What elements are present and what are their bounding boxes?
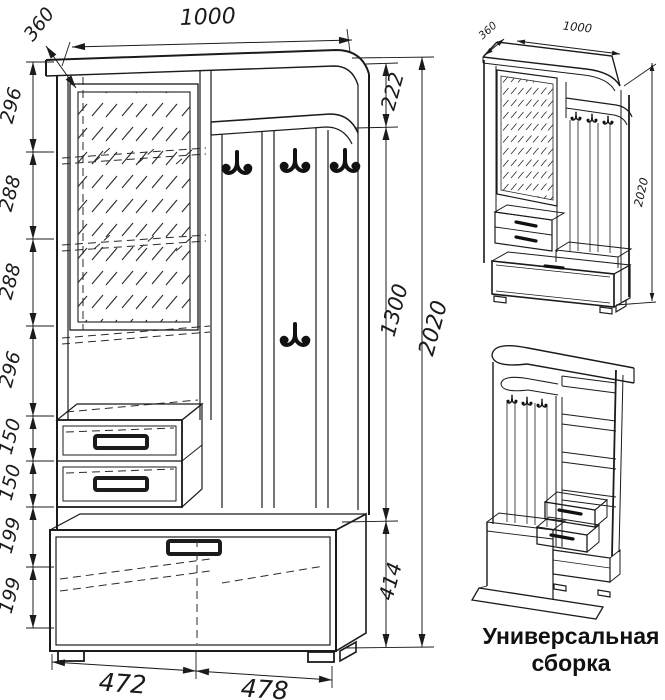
foot [308, 652, 334, 662]
dim-150-upper: 150 [0, 416, 26, 457]
caption-line-1: Универсальная [483, 623, 660, 649]
iso-feet [494, 296, 626, 314]
iso-door-handle [545, 266, 563, 268]
coat-hook-icon [603, 116, 613, 124]
coat-hook-icon [571, 112, 581, 120]
mirror [70, 77, 198, 330]
furniture-technical-drawing: 296 288 288 296 150 150 199 199 1000 360… [0, 0, 665, 700]
drawer-unit [57, 404, 202, 507]
iso2-base [553, 550, 620, 597]
iso-hat-shelf [566, 98, 632, 125]
iso2-right-inner [619, 375, 623, 552]
coat-hook-icon [537, 399, 547, 407]
foot [340, 642, 356, 661]
coat-hook-icon [587, 114, 597, 122]
caption-line-2: сборка [531, 650, 610, 676]
iso-mirror [497, 70, 557, 206]
drawing-svg: 296 288 288 296 150 150 199 199 1000 360… [0, 0, 665, 700]
iso-dim-360: 360 [477, 19, 500, 42]
dim-288-lower: 288 [0, 261, 26, 302]
coat-hook-icon [282, 150, 309, 171]
iso-slats [570, 120, 610, 253]
mirror-hatch [78, 92, 190, 322]
dim-niche-222: 222 [376, 70, 409, 113]
iso-mirror-hatch [501, 76, 553, 200]
iso2-right-edge [612, 370, 616, 556]
iso-drawer-unit [495, 205, 564, 251]
iso-view-standard: 1000 360 2020 [477, 19, 656, 314]
dim-150-lower: 150 [0, 462, 26, 503]
dim-depth-360: 360 [19, 3, 59, 45]
coat-hooks [224, 150, 359, 345]
dim-cabinet-414: 414 [374, 560, 407, 603]
dim-199-lower: 199 [0, 575, 26, 616]
base-cabinet [50, 514, 366, 662]
center-divider-panel [200, 70, 211, 420]
coat-hook-icon [224, 152, 251, 173]
hook-panel-slats [222, 128, 328, 508]
iso2-drawer-handle [551, 535, 573, 539]
hat-shelf [211, 114, 358, 144]
iso2-shelves [562, 376, 616, 507]
dim-bottom-472: 472 [98, 667, 148, 699]
dim-296-lower: 296 [0, 349, 26, 390]
dim-bottom-478: 478 [240, 673, 290, 700]
dim-296-top: 296 [0, 85, 27, 126]
iso2-hat-shelf [501, 377, 558, 395]
dim-width-1000: 1000 [179, 4, 236, 31]
top-shelf-board [46, 50, 369, 85]
foot [58, 651, 84, 661]
dim-height-2020: 2020 [414, 298, 453, 359]
iso-dim-2020: 2020 [631, 176, 651, 208]
coat-hook-icon [282, 324, 309, 345]
coat-hook-icon [332, 150, 359, 171]
front-view: 296 288 288 296 150 150 199 199 1000 360… [0, 3, 453, 700]
iso2-slats [507, 400, 547, 527]
door-handle [168, 541, 220, 554]
drawer-handle [95, 436, 147, 448]
dim-hooks-1300: 1300 [376, 281, 413, 339]
dim-199-upper: 199 [0, 515, 26, 556]
iso-divider [557, 78, 566, 252]
iso-dim-1000: 1000 [562, 19, 593, 36]
assembly-caption: Универсальная сборка [483, 623, 660, 676]
iso2-open-flap [472, 586, 603, 619]
dim-288-upper: 288 [0, 173, 26, 214]
iso-view-universal [472, 346, 634, 619]
drawer-handle [95, 478, 147, 490]
iso2-feet [554, 584, 610, 597]
